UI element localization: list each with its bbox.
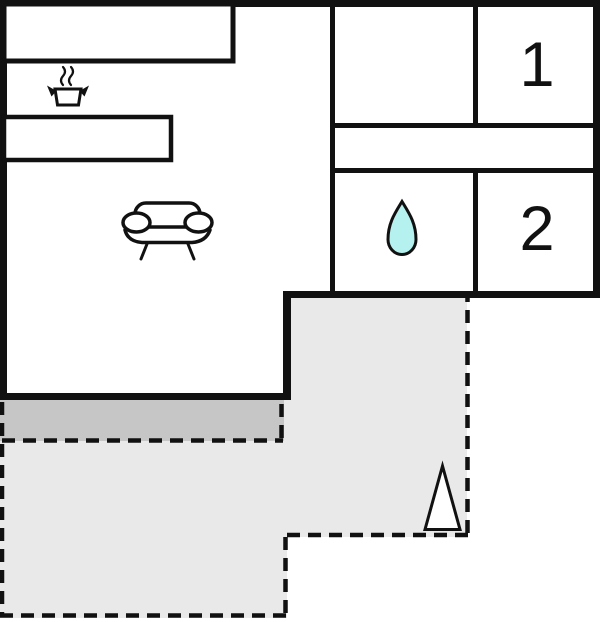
wall-bedroom1-divider (473, 7, 478, 123)
wall-corridor-top (335, 123, 593, 128)
kitchen-counter-top (4, 4, 233, 61)
wall-step-vertical (283, 291, 291, 400)
wall-right (593, 0, 600, 298)
terrace-surface (0, 298, 467, 618)
kitchen-counter-lower (4, 117, 171, 160)
floorplan-canvas: 1 2 (0, 0, 600, 622)
wall-bottom-right (283, 291, 600, 298)
sofa-icon (123, 203, 212, 259)
terrace-area (0, 296, 469, 618)
wall-corridor-bottom (335, 168, 593, 173)
kitchen-counters (4, 4, 233, 160)
bedroom-1-label: 1 (505, 32, 569, 98)
bedroom-2-label: 2 (505, 196, 569, 262)
wall-bottom-left (0, 393, 291, 400)
wall-bedroom2-divider (473, 173, 478, 291)
cooking-pot-icon (47, 67, 89, 105)
water-drop-icon (388, 202, 416, 255)
terrace-step (0, 400, 284, 441)
wall-living-divider (330, 7, 335, 291)
